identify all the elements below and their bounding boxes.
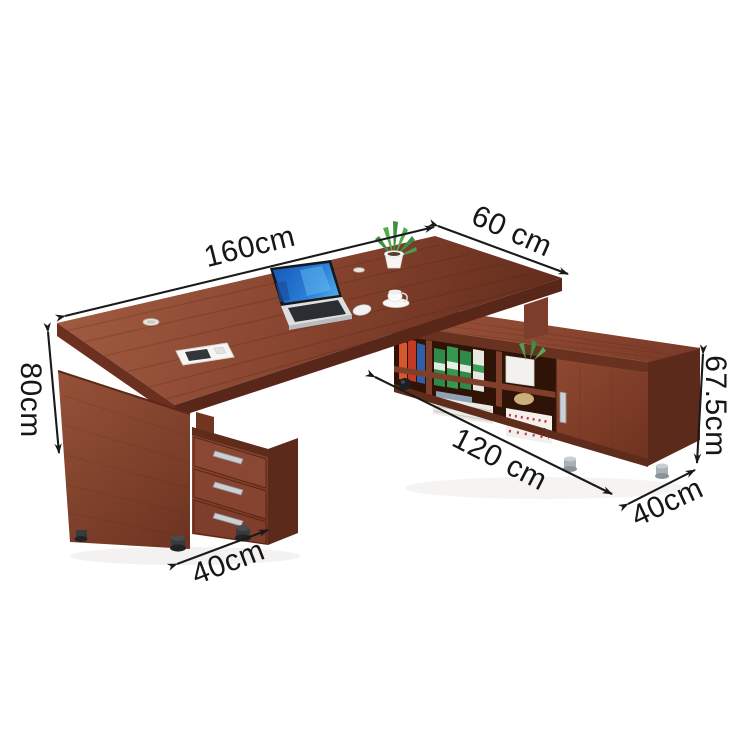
desk-support-post-right (524, 297, 548, 340)
return-cabinet (392, 310, 700, 479)
cable-grommet-small (354, 268, 365, 273)
pedestal-depth-label: 40cm (187, 534, 269, 592)
return-height-label: 67.5cm (699, 355, 732, 456)
dimension-return-depth: 40cm (626, 470, 708, 533)
desk-length-label: 160cm (201, 220, 299, 274)
desk-diagram-canvas: 160cm 60 cm 80cm 40cm 120 cm 67.5cm 40cm (0, 0, 750, 750)
product-dimension-image: 160cm 60 cm 80cm 40cm 120 cm 67.5cm 40cm (0, 0, 750, 750)
dimension-return-height: 67.5cm (697, 354, 732, 463)
dimension-desk-height: 80cm (14, 332, 59, 453)
cabinet-binders-left (399, 339, 425, 384)
pedestal-side (268, 438, 298, 545)
cabinet-divider-2 (496, 351, 502, 407)
cabinet-divider-1 (426, 340, 432, 396)
cabinet-caster (399, 378, 412, 390)
cabinet-right-panel (648, 348, 700, 466)
dimension-pedestal-depth: 40cm (177, 530, 269, 591)
cable-grommet (143, 319, 159, 326)
desk-height-label: 80cm (14, 362, 47, 437)
cabinet-door-handle (560, 392, 566, 423)
